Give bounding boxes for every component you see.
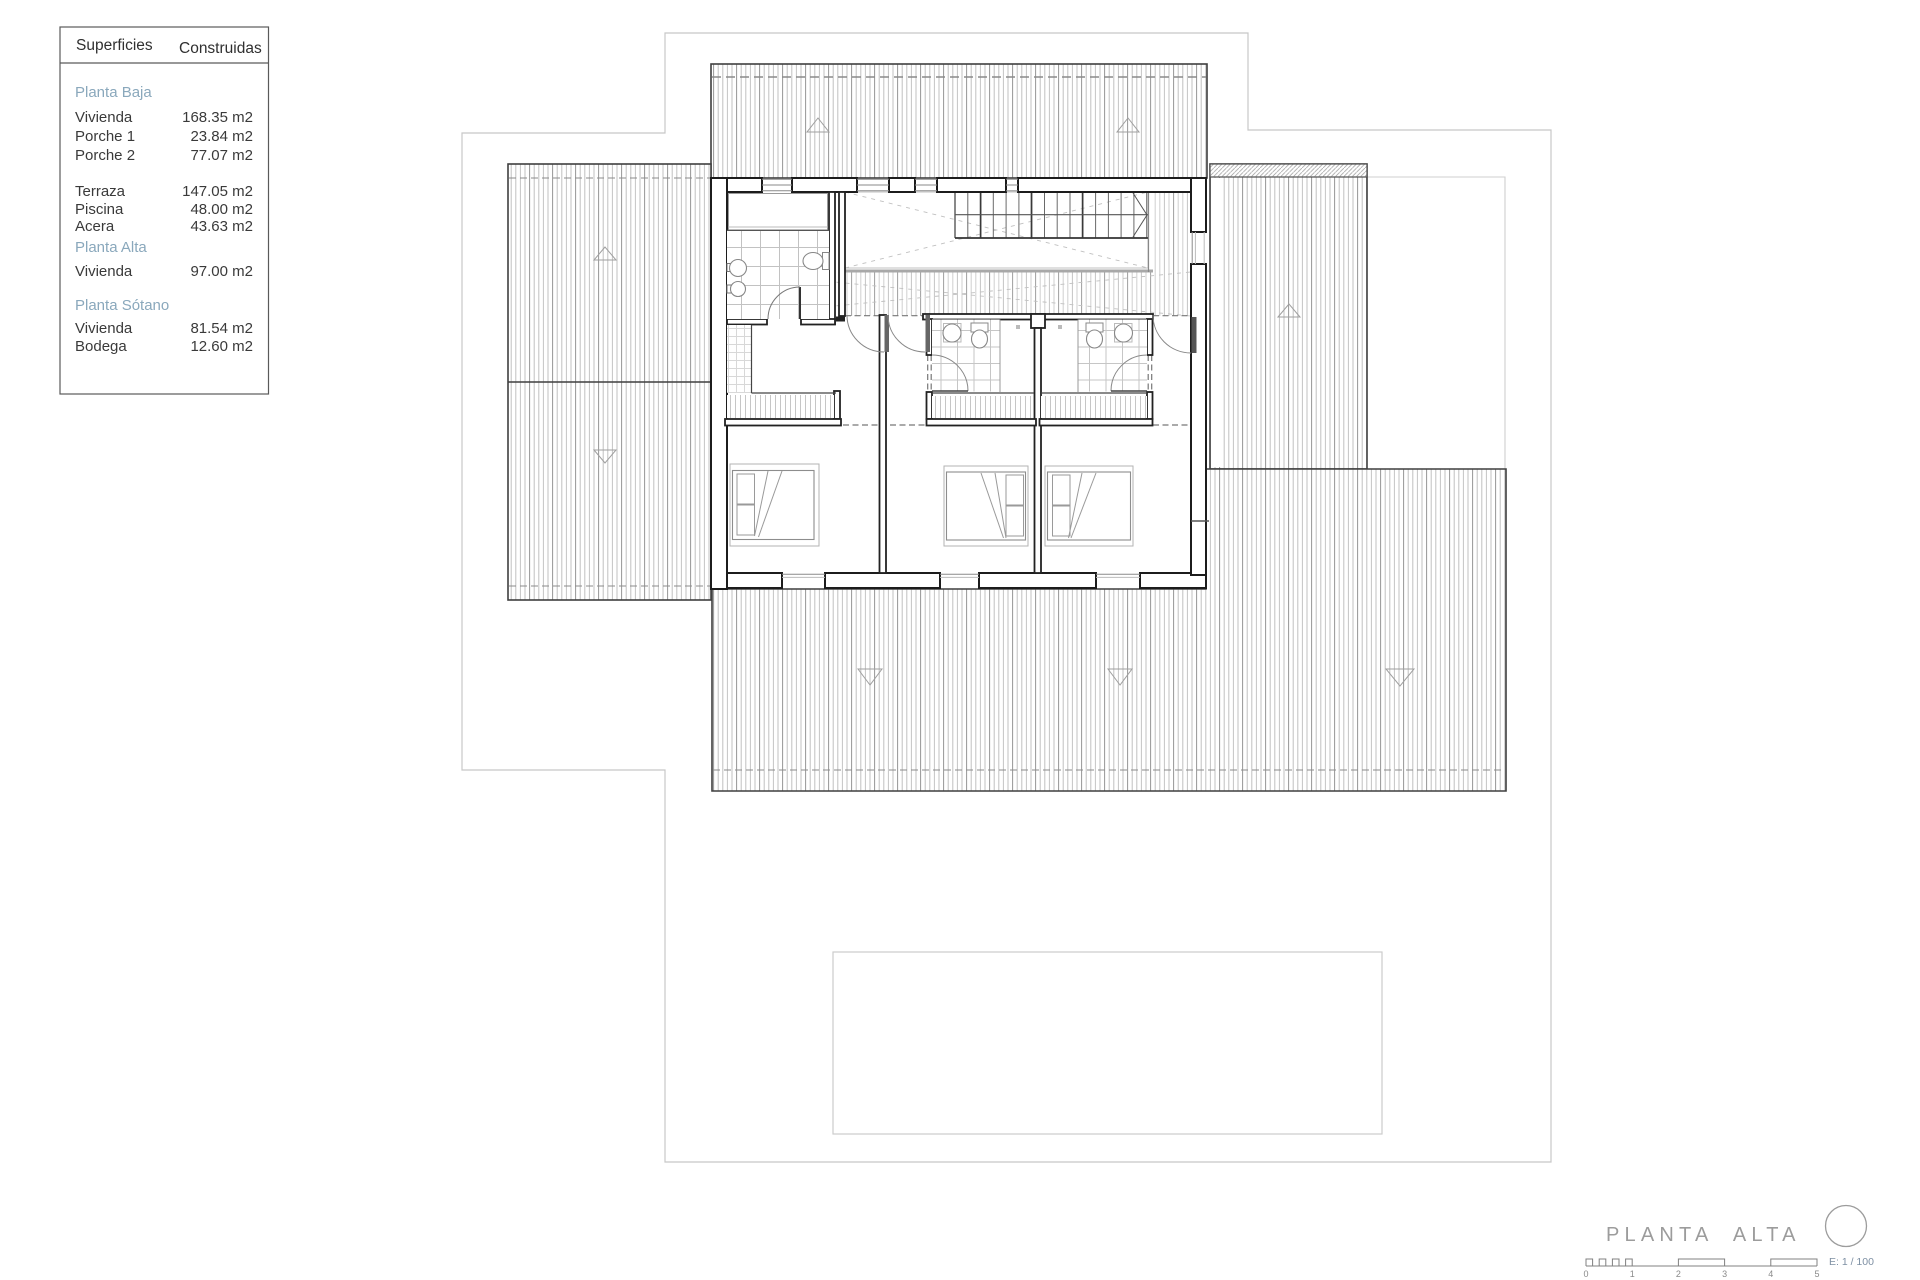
svg-text:97.00 m2: 97.00 m2 bbox=[190, 263, 253, 280]
svg-text:23.84 m2: 23.84 m2 bbox=[190, 128, 253, 145]
svg-text:12.60 m2: 12.60 m2 bbox=[190, 338, 253, 355]
svg-text:81.54 m2: 81.54 m2 bbox=[190, 320, 253, 337]
svg-text:2: 2 bbox=[1676, 1269, 1681, 1279]
svg-text:Vivienda: Vivienda bbox=[75, 263, 133, 280]
svg-text:Planta Baja: Planta Baja bbox=[75, 84, 152, 101]
svg-text:168.35 m2: 168.35 m2 bbox=[182, 109, 253, 126]
svg-text:Construidas: Construidas bbox=[179, 40, 262, 57]
svg-text:5: 5 bbox=[1814, 1269, 1819, 1279]
svg-text:Planta Alta: Planta Alta bbox=[75, 239, 147, 256]
svg-text:Superficies: Superficies bbox=[76, 37, 153, 54]
svg-text:PLANTA ALTA: PLANTA ALTA bbox=[1606, 1224, 1801, 1246]
svg-text:Acera: Acera bbox=[75, 218, 115, 235]
svg-text:Vivienda: Vivienda bbox=[75, 109, 133, 126]
svg-text:4: 4 bbox=[1768, 1269, 1773, 1279]
svg-text:Vivienda: Vivienda bbox=[75, 320, 133, 337]
svg-text:Porche 1: Porche 1 bbox=[75, 128, 135, 145]
svg-text:48.00 m2: 48.00 m2 bbox=[190, 201, 253, 218]
svg-text:Terraza: Terraza bbox=[75, 183, 126, 200]
svg-text:Porche 2: Porche 2 bbox=[75, 147, 135, 164]
svg-text:E: 1 / 100: E: 1 / 100 bbox=[1829, 1256, 1874, 1268]
svg-text:Piscina: Piscina bbox=[75, 201, 124, 218]
svg-text:0: 0 bbox=[1583, 1269, 1588, 1279]
svg-text:Bodega: Bodega bbox=[75, 338, 127, 355]
svg-text:77.07 m2: 77.07 m2 bbox=[190, 147, 253, 164]
svg-text:43.63 m2: 43.63 m2 bbox=[190, 218, 253, 235]
svg-text:3: 3 bbox=[1722, 1269, 1727, 1279]
svg-text:Planta Sótano: Planta Sótano bbox=[75, 297, 169, 314]
svg-text:147.05 m2: 147.05 m2 bbox=[182, 183, 253, 200]
svg-text:1: 1 bbox=[1630, 1269, 1635, 1279]
